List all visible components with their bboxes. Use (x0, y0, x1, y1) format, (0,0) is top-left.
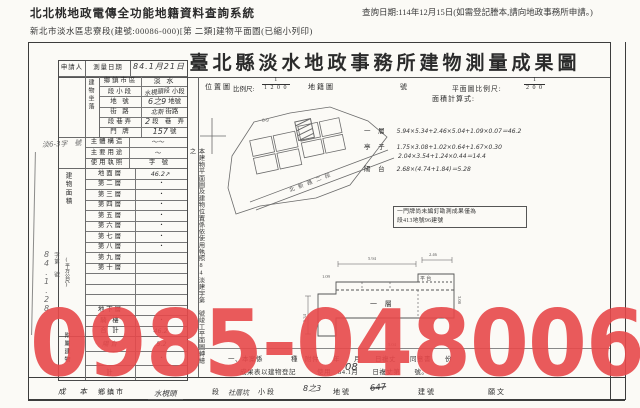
floor-value: ・ (136, 192, 187, 198)
fraction-denominator: 1 2 0 0 (262, 84, 290, 92)
field-label: 段巷弄 (100, 118, 142, 127)
location-row: 段小段水梘頭段小段 (100, 86, 187, 96)
plan-scale-label: 平面圖比例尺: (452, 83, 502, 93)
map-scale-fraction: 11 2 0 0 (262, 77, 290, 92)
field-value: 〜 (130, 150, 187, 156)
floor-label (86, 274, 136, 284)
fraction-numerator: 1 (533, 77, 536, 84)
calc-line-formula: 1.75×3.08+1.02×0.64+1.67×0.30 (397, 144, 502, 151)
floor-row: 第二層・ (86, 179, 187, 190)
boxed-note-line1: 一門牌尚未編釘勘測成果僅為 (397, 208, 523, 217)
floor-plan-sub-label: 平 台 (420, 275, 431, 282)
floor-label: 第五層 (86, 211, 136, 221)
location-row: 街 路北新街路 (100, 107, 187, 117)
floor-value: 46.2↗ (136, 171, 187, 177)
handwritten-value: 〜 (154, 150, 160, 156)
applicant-row: 申請人 測量日期 84.1月21日 (59, 61, 187, 76)
fraction-denominator: 2 0 0 (524, 84, 545, 92)
floor-value: ・ (136, 202, 187, 208)
watermark-phone-number: 0985-048006 (30, 298, 640, 390)
floor-row: 第十層 (86, 263, 187, 274)
border-line (28, 399, 625, 401)
document-info-line: 新北市淡水區忠寮段(建號:00086-000)[第 二類]建物平面圖(已縮小列印… (30, 25, 313, 37)
floor-value: ・ (136, 234, 187, 240)
structure-rows: 主體構造〜〜 主要用途〜 使用執照字 號 (86, 138, 187, 168)
cadastral-map-label: 地籍圖 (308, 82, 335, 92)
handwritten-value: 北新 (151, 109, 164, 115)
calc-line-formula: 2.04×3.54+1.24×0.44＝14.4 (398, 151, 486, 160)
floor-row (86, 273, 187, 284)
floor-row: 第六層・ (86, 221, 187, 232)
floor-value: ・ (136, 181, 187, 187)
location-section: 鄉鎮市區淡 水 段小段水梘頭段小段 地 號6之9地號 街 路北新街路 段巷弄2段… (59, 76, 187, 137)
field-label: 鄉鎮市區 (100, 77, 142, 86)
handwritten-value: 157 (153, 128, 168, 136)
calc-line-formula: 2.68×(4.74+1.84)＝5.28 (397, 164, 471, 173)
area-calc-title: 面積計算式: (432, 94, 475, 104)
area-calc-line: 一 層5.94×5.34+2.46×5.04+1.09×0.07＝46.2 (364, 125, 521, 135)
field-value: 6之9地號 (142, 98, 187, 106)
location-row: 地 號6之9地號 (100, 96, 187, 106)
boxed-note-line2: 段413地號96建號 (397, 217, 523, 226)
floor-row: 地面層46.2↗ (86, 169, 187, 179)
border-line (28, 42, 29, 400)
parcel-number-label: 6-9 (262, 119, 269, 124)
area-calc-line: 亭 子1.75×3.08+1.02×0.64+1.67×0.30 (364, 141, 502, 151)
location-map-sketch: 6-9 北新路二段 (198, 92, 396, 258)
calc-line-prefix: 一 層 (364, 125, 388, 135)
floor-label: 地面層 (86, 169, 136, 179)
floor-label: 第九層 (86, 253, 136, 263)
survey-date-value: 84.1月21日 (133, 63, 185, 71)
calc-line-formula: 5.94×5.34+2.46×5.04+1.09×0.07＝46.2 (397, 126, 522, 135)
floor-label: 第六層 (86, 222, 136, 232)
number-label: 號 (400, 82, 409, 92)
field-value: 字 號 (130, 160, 187, 166)
document-title: 臺北縣淡水地政事務所建物測量成果圖 (185, 48, 585, 75)
floor-label: 第七層 (86, 232, 136, 242)
field-label: 主要用途 (86, 148, 130, 157)
location-row: 段巷弄2段 巷 弄 (100, 117, 187, 127)
floor-label: 第十層 (86, 264, 136, 274)
floor-area-vertical-label: 建物面積 (62, 172, 72, 254)
floor-value: ・ (136, 213, 187, 219)
location-rows: 鄉鎮市區淡 水 段小段水梘頭段小段 地 號6之9地號 街 路北新街路 段巷弄2段… (100, 77, 187, 137)
field-label: 街 路 (100, 108, 142, 117)
field-value: 〜〜 (130, 139, 187, 145)
field-label: 使用執照 (86, 159, 130, 168)
survey-date-label: 測量日期 (86, 61, 131, 76)
field-label: 主體構造 (86, 138, 130, 147)
floor-row: 第七層・ (86, 231, 187, 242)
floor-row: 第八層・ (86, 242, 187, 253)
location-row: 鄉鎮市區淡 水 (100, 77, 187, 86)
field-label: 段小段 (100, 87, 142, 96)
floor-row: 第九層 (86, 252, 187, 263)
boxed-note: 一門牌尚未編釘勘測成果僅為 段413地號96建號 (393, 206, 527, 228)
floor-row: 第四層・ (86, 200, 187, 211)
structure-row: 使用執照字 號 (86, 158, 187, 168)
location-vertical-label: 建物坐落 (86, 79, 95, 137)
calc-line-prefix: 陽 台 (364, 163, 388, 173)
field-value: 2段 巷 弄 (142, 118, 187, 126)
border-line (28, 42, 610, 43)
survey-cross-icon (200, 118, 226, 154)
floor-label: 第二層 (86, 180, 136, 190)
applicant-label: 申請人 (59, 61, 86, 76)
field-value: 水梘頭段小段 (142, 89, 187, 95)
area-calc-line: 2.04×3.54+1.24×0.44＝14.4 (398, 151, 486, 160)
handwritten-value: 〜〜 (151, 139, 164, 145)
floor-label: 第四層 (86, 201, 136, 211)
handwritten-value: 2 (145, 118, 150, 126)
floor-row: 第五層・ (86, 210, 187, 221)
fraction-numerator: 1 (274, 77, 277, 84)
dimension-label: 5.94 (368, 256, 377, 261)
subject-building-hatched (295, 119, 315, 141)
dimension-label: 2.46 (429, 252, 438, 257)
query-date-note: 查詢日期:114年12月15日(如需登記謄本,請向地政事務所申請。) (362, 6, 593, 18)
floor-label: 第三層 (86, 190, 136, 200)
field-label: 門 牌 (100, 128, 142, 137)
scanned-survey-document-page: 北北桃地政電傳全功能地籍資料查詢系統 新北市淡水區忠寮段(建號:00086-00… (0, 0, 640, 408)
floor-value: ・ (136, 223, 187, 229)
handwritten-value: 水梘頭段 (144, 87, 170, 97)
field-label: 地 號 (100, 97, 142, 106)
field-value: 淡 水 (142, 78, 187, 85)
dimension-label: 1.09 (322, 274, 331, 279)
floor-value: ・ (136, 244, 187, 250)
calc-line-prefix: 亭 子 (364, 141, 388, 151)
margin-stamp-handwriting: 淡6-3字 號 (42, 138, 82, 150)
road-name-label: 北新路二段 (288, 169, 335, 193)
handwritten-value: 6之9 (148, 98, 166, 106)
location-row: 門 牌157號 (100, 127, 187, 137)
field-value: 北新街路 (142, 109, 187, 115)
system-title: 北北桃地政電傳全功能地籍資料查詢系統 (30, 5, 255, 21)
structure-row: 主體構造〜〜 (86, 138, 187, 147)
plan-scale-fraction: 12 0 0 (524, 77, 545, 92)
area-calc-line: 陽 台2.68×(4.74+1.84)＝5.28 (364, 163, 471, 173)
location-map-label: 位置圖 (205, 82, 232, 92)
structure-row: 主要用途〜 (86, 147, 187, 157)
handwritten-value: 46.2↗ (151, 171, 171, 177)
floor-label: 第八層 (86, 243, 136, 253)
field-value: 157號 (142, 128, 187, 136)
floor-row: 第三層・ (86, 189, 187, 200)
applicant-cell-blank (59, 77, 86, 137)
